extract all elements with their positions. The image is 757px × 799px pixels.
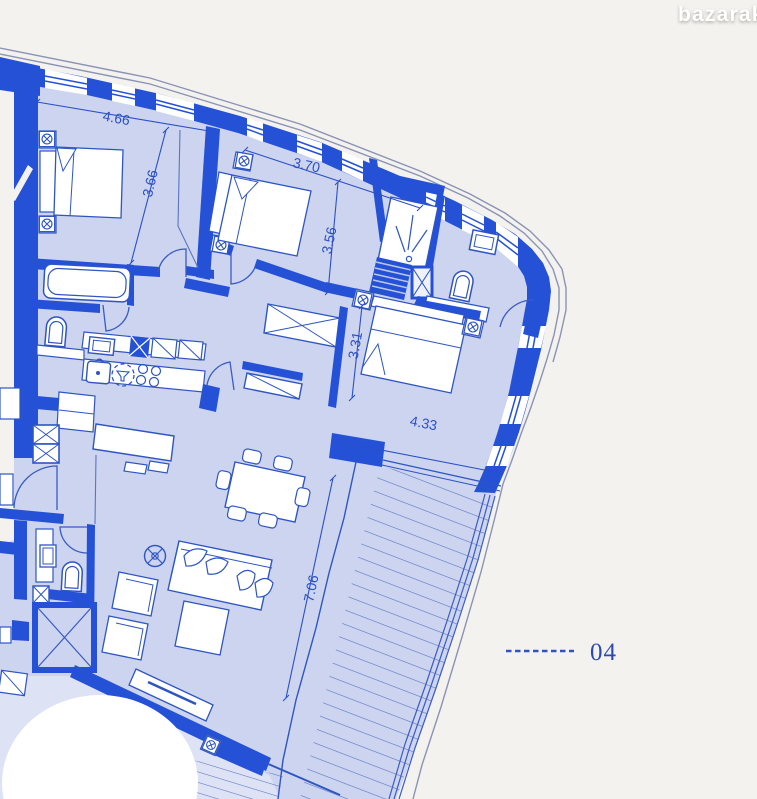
svg-text:bazarak: bazarak	[678, 3, 757, 26]
svg-text:04: 04	[590, 639, 617, 666]
